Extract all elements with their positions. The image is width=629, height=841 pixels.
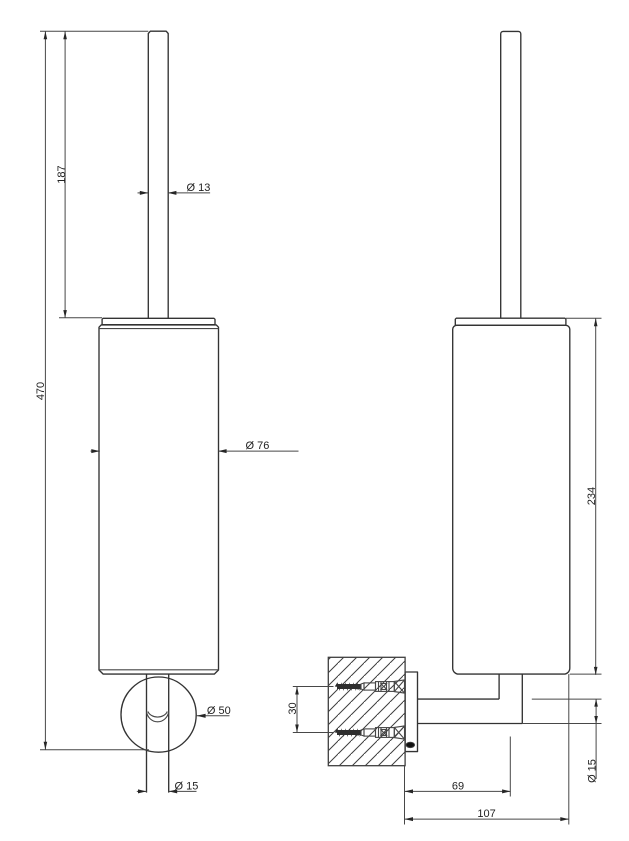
svg-text:Ø 15: Ø 15 bbox=[586, 759, 598, 783]
svg-text:187: 187 bbox=[56, 165, 68, 183]
svg-text:107: 107 bbox=[477, 808, 495, 820]
svg-text:Ø 76: Ø 76 bbox=[246, 440, 270, 452]
svg-text:Ø 50: Ø 50 bbox=[207, 705, 231, 717]
svg-text:69: 69 bbox=[452, 780, 464, 792]
svg-text:Ø 13: Ø 13 bbox=[187, 182, 211, 194]
svg-text:234: 234 bbox=[586, 487, 598, 505]
svg-text:Ø 15: Ø 15 bbox=[175, 781, 199, 793]
svg-text:30: 30 bbox=[287, 702, 299, 714]
svg-text:470: 470 bbox=[35, 382, 47, 400]
